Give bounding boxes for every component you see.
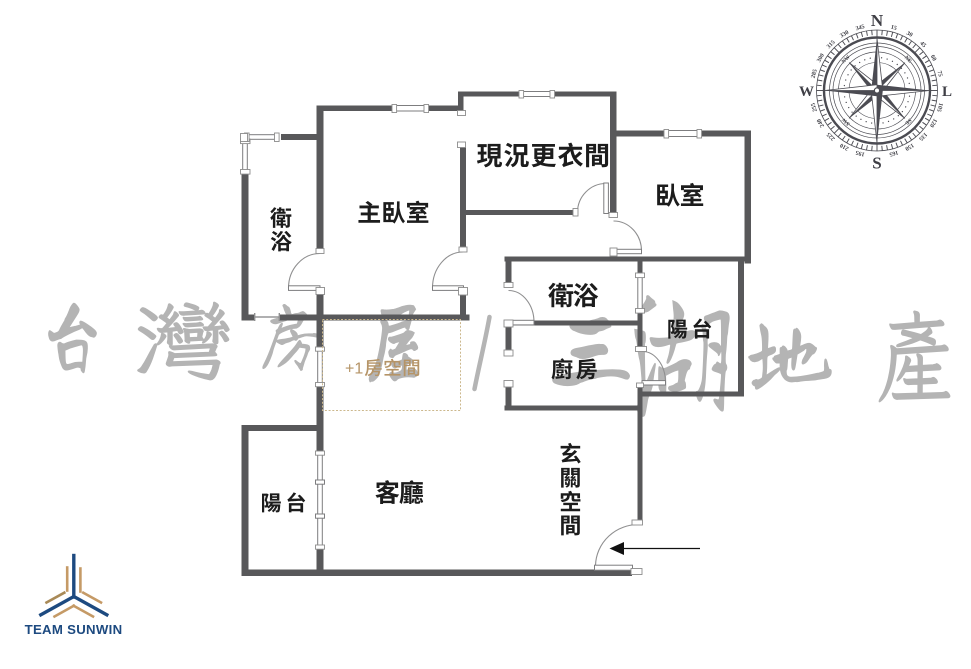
svg-text:TEAM SUNWIN: TEAM SUNWIN — [25, 622, 123, 637]
svg-text:S: S — [872, 154, 881, 173]
svg-text:L: L — [942, 84, 952, 100]
svg-text:N: N — [871, 11, 884, 30]
svg-text:+1: +1 — [345, 361, 363, 378]
svg-text:W: W — [799, 84, 814, 100]
